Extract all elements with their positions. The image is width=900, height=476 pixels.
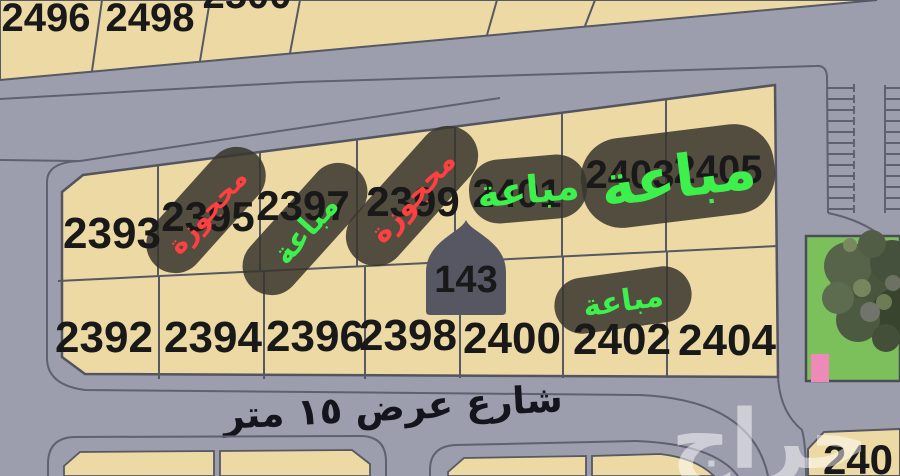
plot-number: 2398 bbox=[359, 311, 457, 360]
bottom-plot bbox=[220, 450, 370, 476]
plot-number: 2496 bbox=[2, 0, 91, 40]
plot-number: 2392 bbox=[55, 313, 153, 362]
plot-number: 2498 bbox=[106, 0, 195, 40]
plot-number: 2396 bbox=[266, 312, 364, 361]
bottom-plot bbox=[448, 456, 586, 476]
bottom-plot bbox=[64, 451, 214, 476]
park-area bbox=[806, 230, 900, 382]
plot-number: 2404 bbox=[678, 316, 776, 365]
haraj-watermark: حراج bbox=[671, 393, 868, 476]
plot-number: 2394 bbox=[164, 313, 262, 362]
plot-map: 2496 2498 2500 2393 2395 2397 2399 2401 … bbox=[0, 0, 900, 476]
block-marker-number: 143 bbox=[434, 259, 497, 301]
plot-number-clipped: 2500 bbox=[203, 0, 292, 17]
park-building bbox=[811, 354, 829, 382]
plot-number: 2393 bbox=[63, 209, 161, 258]
plot-number: 2400 bbox=[463, 314, 561, 363]
status-label-sold: مباعة bbox=[475, 164, 581, 217]
